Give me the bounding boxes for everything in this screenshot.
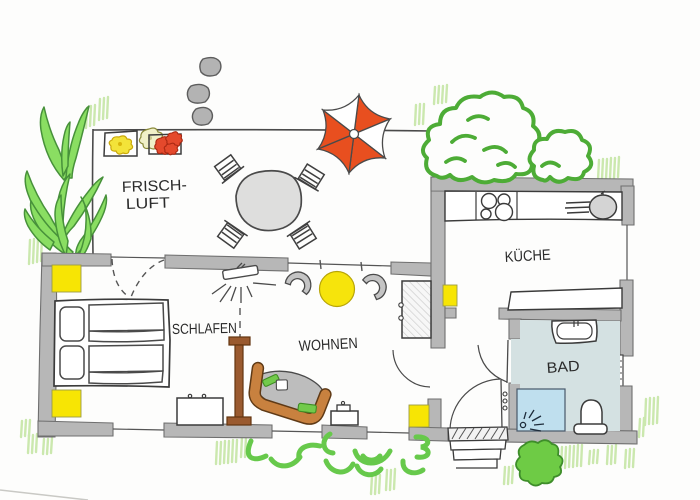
svg-text:FRISCH-: FRISCH- — [122, 177, 188, 196]
svg-text:KÜCHE: KÜCHE — [504, 246, 551, 266]
svg-text:SCHLAFEN: SCHLAFEN — [172, 321, 237, 338]
svg-text:WOHNEN: WOHNEN — [298, 335, 358, 355]
svg-text:LUFT: LUFT — [126, 194, 171, 213]
svg-text:BAD: BAD — [546, 358, 580, 377]
